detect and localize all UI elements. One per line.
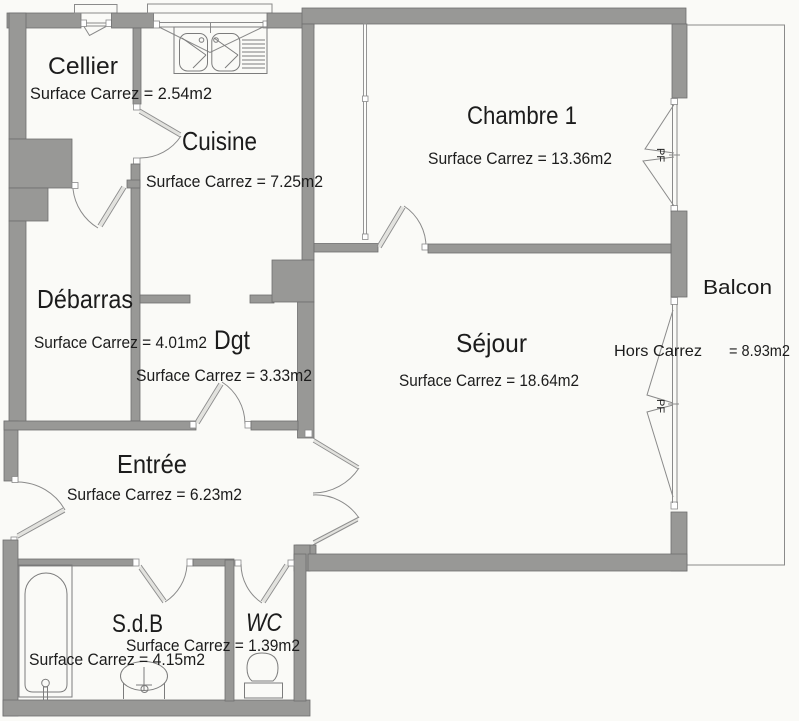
- svg-text:S.d.B: S.d.B: [112, 610, 163, 638]
- svg-text:Hors Carrez: Hors Carrez: [614, 343, 702, 360]
- svg-text:Surface Carrez = 13.36m2: Surface Carrez = 13.36m2: [428, 149, 612, 168]
- svg-text:Surface Carrez = 4.15m2: Surface Carrez = 4.15m2: [29, 651, 205, 669]
- svg-text:Cellier: Cellier: [48, 53, 118, 80]
- svg-text:= 8.93m2: = 8.93m2: [729, 343, 790, 360]
- svg-text:Cuisine: Cuisine: [182, 126, 257, 156]
- svg-text:WC: WC: [246, 609, 283, 637]
- svg-text:Dgt: Dgt: [214, 325, 250, 355]
- svg-text:Surface Carrez = 3.33m2: Surface Carrez = 3.33m2: [136, 366, 312, 385]
- svg-text:Entrée: Entrée: [117, 449, 187, 479]
- svg-text:Surface Carrez = 7.25m2: Surface Carrez = 7.25m2: [146, 172, 323, 191]
- svg-text:PF: PF: [654, 148, 666, 162]
- svg-text:Chambre 1: Chambre 1: [467, 102, 577, 130]
- svg-text:Surface Carrez = 6.23m2: Surface Carrez = 6.23m2: [67, 485, 242, 504]
- svg-text:PF: PF: [654, 399, 666, 413]
- svg-text:Balcon: Balcon: [703, 277, 772, 299]
- svg-text:Séjour: Séjour: [456, 328, 527, 358]
- svg-text:Débarras: Débarras: [37, 284, 133, 314]
- svg-text:Surface Carrez = 4.01m2: Surface Carrez = 4.01m2: [34, 333, 207, 352]
- svg-text:Surface Carrez = 2.54m2: Surface Carrez = 2.54m2: [30, 84, 212, 103]
- svg-text:Surface Carrez = 18.64m2: Surface Carrez = 18.64m2: [399, 371, 579, 390]
